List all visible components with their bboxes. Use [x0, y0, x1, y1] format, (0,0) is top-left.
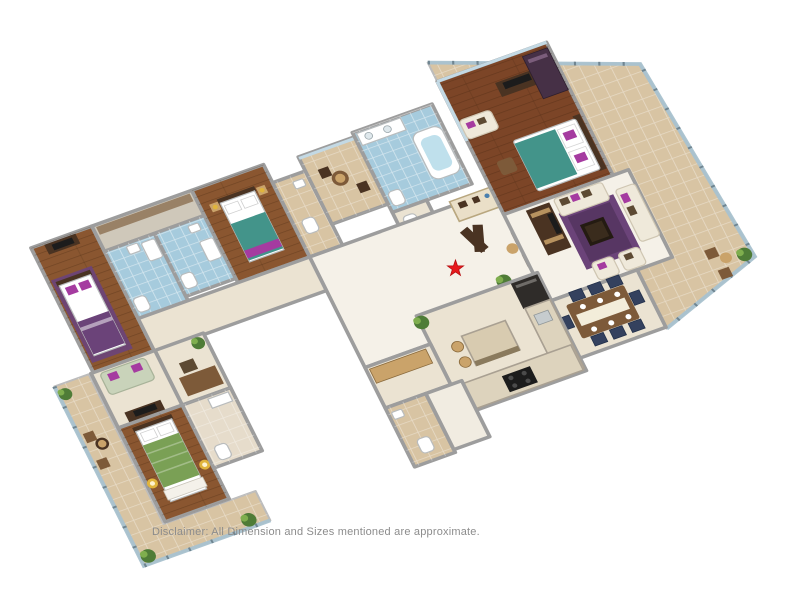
- isometric-plan: [0, 0, 793, 566]
- floor-plan-image: [0, 0, 800, 600]
- disclaimer-text: Disclaimer: All Dimension and Sizes ment…: [152, 526, 480, 538]
- floor-plan-page: Disclaimer: All Dimension and Sizes ment…: [0, 0, 800, 600]
